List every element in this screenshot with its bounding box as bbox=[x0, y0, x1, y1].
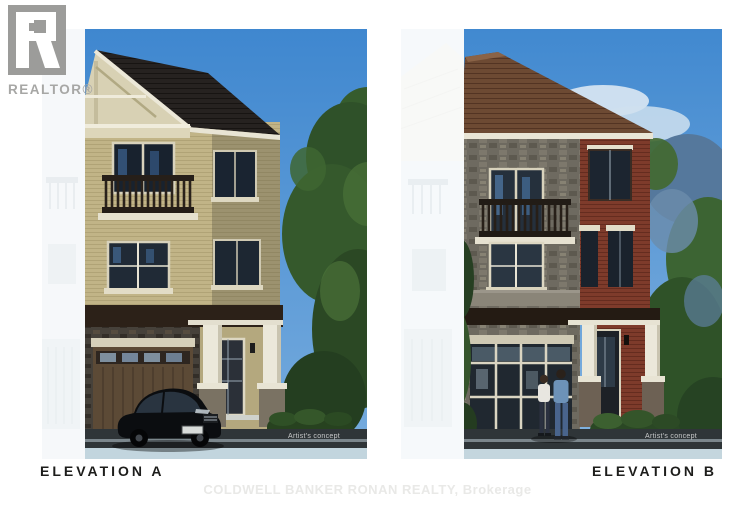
upper-right-window bbox=[587, 145, 633, 200]
porch-lamp bbox=[250, 343, 255, 353]
listing-photo-page: Artist's concept bbox=[0, 0, 735, 522]
balcony bbox=[98, 175, 198, 220]
elevation-b-scene bbox=[398, 29, 722, 459]
realtor-block-r-logo bbox=[8, 5, 66, 75]
balcony bbox=[475, 199, 575, 244]
faded-adjacent-unit bbox=[398, 29, 464, 459]
realtor-watermark-text: REALTOR® bbox=[8, 82, 98, 97]
second-floor-right-window bbox=[211, 240, 263, 290]
realtor-watermark: REALTOR® bbox=[8, 5, 98, 97]
second-floor-left-window bbox=[486, 243, 547, 293]
elevation-b-label: ELEVATION B bbox=[592, 463, 717, 479]
upper-right-window bbox=[211, 151, 259, 202]
second-floor-left-window bbox=[104, 242, 173, 294]
brokerage-watermark: COLDWELL BANKER RONAN REALTY, Brokerage bbox=[0, 482, 735, 497]
elevation-b-rendering: Artist's concept bbox=[398, 29, 722, 459]
porch-lamp bbox=[624, 335, 629, 345]
elevation-a-label: ELEVATION A bbox=[40, 463, 165, 479]
